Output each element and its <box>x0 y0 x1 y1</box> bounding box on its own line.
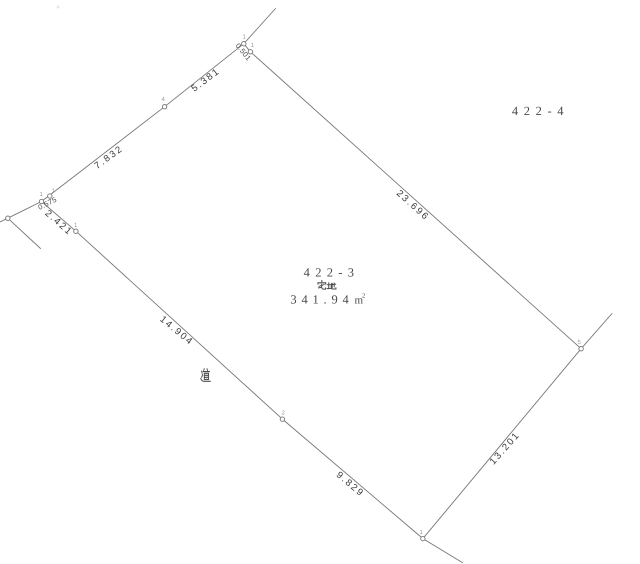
svg-text:422-4: 422-4 <box>512 104 569 118</box>
svg-text:2: 2 <box>282 410 286 417</box>
svg-text:341.94: 341.94 <box>290 293 353 307</box>
svg-text:13.201: 13.201 <box>488 430 523 468</box>
svg-text:2: 2 <box>362 293 365 300</box>
svg-text:23.696: 23.696 <box>394 188 431 223</box>
svg-text:1: 1 <box>420 529 424 536</box>
svg-text:9.829: 9.829 <box>334 470 367 500</box>
svg-text:422-3: 422-3 <box>304 266 360 280</box>
svg-text:1: 1 <box>74 222 78 229</box>
svg-text:2.421: 2.421 <box>42 208 74 238</box>
svg-text:1: 1 <box>251 42 255 49</box>
svg-text:14.904: 14.904 <box>157 314 195 348</box>
svg-text:7.832: 7.832 <box>92 143 125 172</box>
svg-text:1: 1 <box>243 34 247 41</box>
svg-text:1: 1 <box>40 191 44 198</box>
svg-text:5.381: 5.381 <box>189 66 222 95</box>
svg-text:4: 4 <box>162 96 166 103</box>
svg-text:5: 5 <box>578 339 582 346</box>
